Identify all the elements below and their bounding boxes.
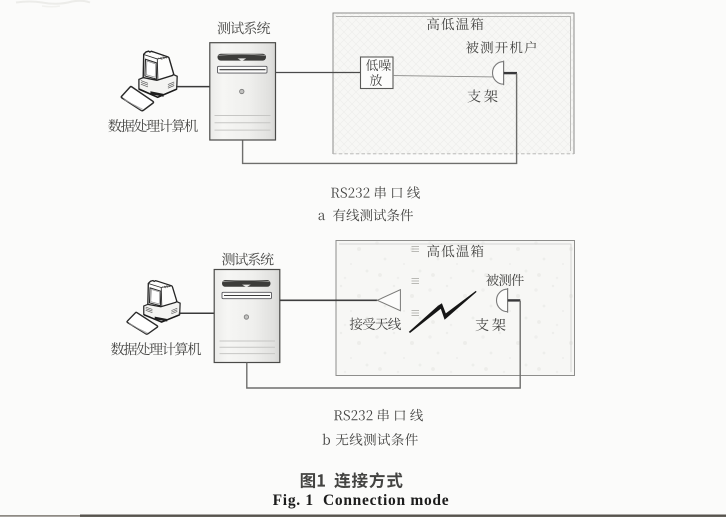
svg-text:Fig. 1 Connection mode: Fig. 1 Connection mode [273, 492, 450, 509]
